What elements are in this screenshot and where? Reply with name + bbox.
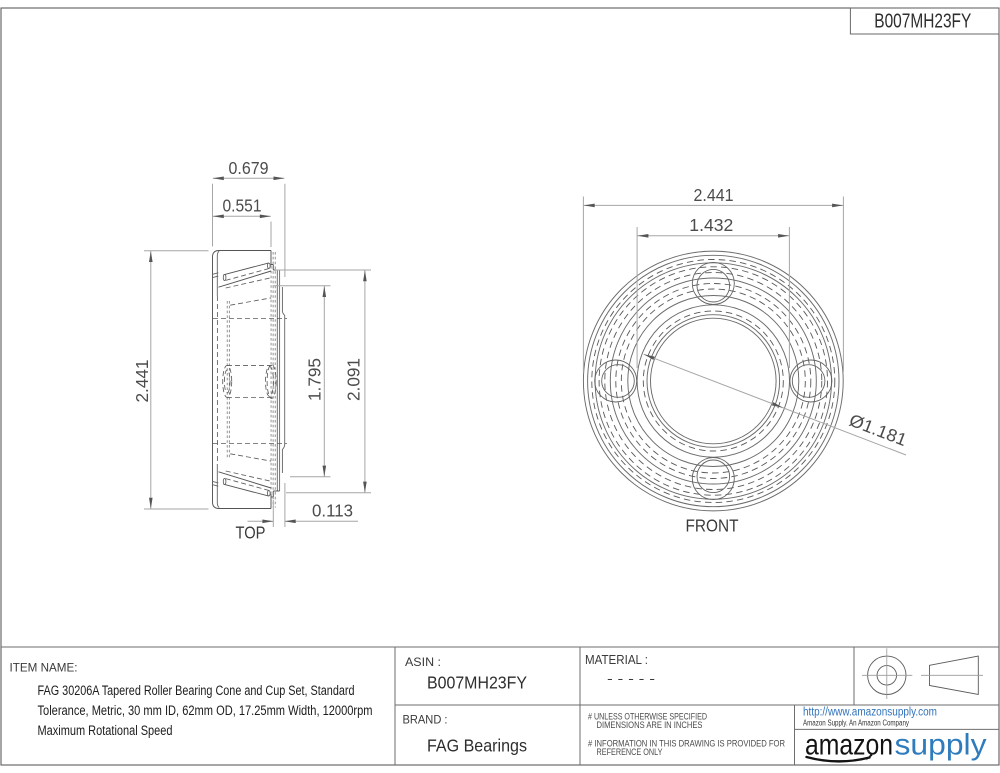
svg-text:FAG 30206A Tapered Roller Bear: FAG 30206A Tapered Roller Bearing Cone a… <box>38 683 355 699</box>
svg-text:supply: supply <box>895 729 987 762</box>
svg-text:REFERENCE ONLY: REFERENCE ONLY <box>597 747 663 757</box>
svg-text:ASIN :: ASIN : <box>405 655 441 669</box>
svg-text:Amazon Supply. An Amazon Compa: Amazon Supply. An Amazon Company <box>803 719 909 728</box>
svg-text:- - - - -: - - - - - <box>607 671 655 686</box>
svg-text:FAG Bearings: FAG Bearings <box>427 736 527 756</box>
svg-text:0.551: 0.551 <box>223 196 262 216</box>
svg-text:amazon: amazon <box>805 729 893 762</box>
svg-text:ITEM NAME:: ITEM NAME: <box>10 661 78 675</box>
svg-text:0.679: 0.679 <box>229 158 269 178</box>
svg-text:DIMENSIONS ARE IN INCHES: DIMENSIONS ARE IN INCHES <box>597 720 703 730</box>
svg-text:2.441: 2.441 <box>132 360 152 403</box>
svg-text:TOP: TOP <box>236 523 266 543</box>
svg-text:MATERIAL :: MATERIAL : <box>585 653 648 667</box>
svg-text:B007MH23FY: B007MH23FY <box>874 11 971 33</box>
svg-text:Maximum Rotational Speed: Maximum Rotational Speed <box>38 723 173 739</box>
svg-text:http://www.amazonsupply.com: http://www.amazonsupply.com <box>803 707 937 719</box>
svg-text:B007MH23FY: B007MH23FY <box>427 673 527 693</box>
svg-text:FRONT: FRONT <box>686 516 739 536</box>
svg-text:2.441: 2.441 <box>694 185 734 205</box>
svg-text:BRAND :: BRAND : <box>403 713 448 727</box>
svg-text:Tolerance, Metric, 30 mm ID, 6: Tolerance, Metric, 30 mm ID, 62mm OD, 17… <box>38 703 373 719</box>
svg-text:1.432: 1.432 <box>689 215 733 235</box>
svg-text:2.091: 2.091 <box>343 358 363 401</box>
svg-text:1.795: 1.795 <box>305 358 325 401</box>
svg-text:0.113: 0.113 <box>312 501 353 521</box>
